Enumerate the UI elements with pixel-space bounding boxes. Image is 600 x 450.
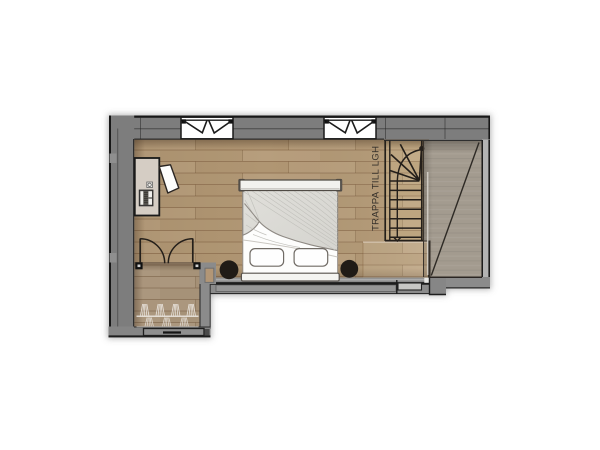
svg-text:TRAPPA TILL LGH: TRAPPA TILL LGH (371, 146, 382, 231)
